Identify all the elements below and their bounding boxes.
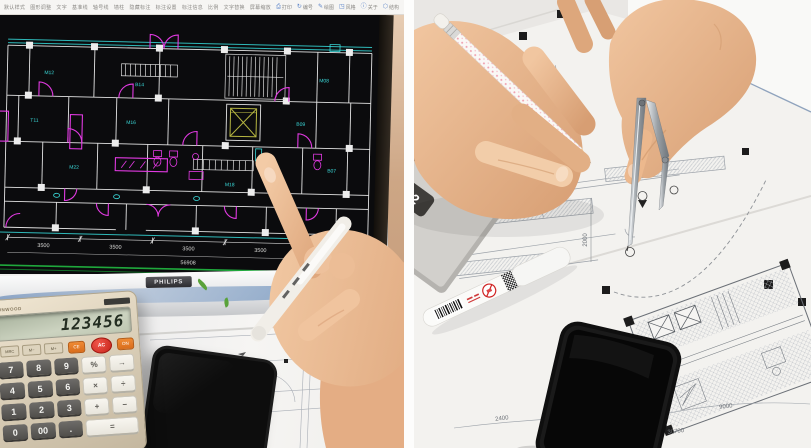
dim-label: 3500 [109,245,121,251]
num-key: 1 [1,403,27,422]
toolbar-tool: ⓘ关于 [361,4,378,11]
num-key: 9 [53,357,79,376]
num-key: 8 [26,359,52,378]
monitor-brand-logo: PHILIPS [146,276,192,288]
dim-label: 3500 [37,243,49,249]
print-icon: ⎙ [276,4,281,10]
toolbar-menu-item: 墙柱 [114,4,125,11]
num-key: 3 [56,399,82,418]
num-key: 6 [55,378,81,397]
toolbar-menu-item: 默认样式 [4,4,25,11]
num-key: 4 [0,382,25,401]
cad-dimension-strip: 3500 3500 3500 3500 3500 56908 [0,234,382,274]
compass-screw [639,100,645,106]
cad-floorplan: M12 B14 M08 T11 M16 B09 M22 M18 B07 [0,15,386,274]
room-label: B09 [296,122,305,128]
panel-divider [404,0,414,448]
room-label: B07 [327,168,336,174]
structure-icon: ⬡ [383,4,388,10]
column-markers [282,341,372,363]
clear-entry-key: CE [68,340,86,353]
num-key: 7 [0,361,24,380]
smartphone [139,344,279,448]
solar-panel [104,297,130,305]
on-key: ON [117,337,135,350]
compass-joint [662,157,668,163]
minus-key: − [112,395,138,415]
calculator-keypad: 7 8 9 % → 4 5 6 × ÷ 1 2 3 + − 0 00 . = [0,353,139,443]
room-label: M08 [319,78,329,84]
dim-total-label: 56908 [180,260,195,266]
percent-key: % [81,355,107,375]
toolbar-menu-item: 隐藏标注 [129,4,150,11]
renumber-icon: ↻ [297,4,302,10]
toolbar-menu-item: 屏幕缩放 [250,4,271,11]
toolbar-menu-item: 标注信息 [182,4,203,11]
num-key: 0 [2,424,28,443]
divide-key: ÷ [110,374,136,394]
num-key: 2 [29,401,55,420]
toolbar-menu-item: 标注设置 [156,4,177,11]
room-label: M18 [225,182,235,188]
room-label: T11 [30,118,39,124]
cad-curtain-wall [0,39,386,241]
toolbar-menu-item: 图形调整 [30,4,51,11]
about-icon: ⓘ [361,4,367,10]
photo-collage: 默认样式 图形调整 文字 基准线 轴号线 墙柱 隐藏标注 标注设置 标注信息 比… [0,0,811,448]
memory-key: MRC [0,345,20,357]
calculator-display: 123456 [60,310,125,333]
toolbar-tool: ↻编号 [297,4,313,11]
num-key: 00 [30,422,56,441]
cad-toolbar: 默认样式 图形调整 文字 基准线 轴号线 墙柱 隐藏标注 标注设置 标注信息 比… [0,0,404,15]
decimal-key: . [58,420,84,439]
toolbar-menu-item: 轴号线 [93,4,109,11]
phone-screen [152,352,236,422]
room-label: M12 [44,70,54,76]
blueprint-scene: 2000 2400 9000 30700 0 [414,0,811,448]
num-key: 5 [27,380,53,399]
toolbar-tool: ✎绘图 [318,4,334,11]
calculator-brand: SUNWOOD [0,306,22,313]
toolbar-menu-item: 文字替换 [224,4,245,11]
toolbar-tool: ⬡结构 [383,4,399,11]
cad-elevator [226,104,261,141]
multiply-key: × [83,376,109,396]
calculator: SUNWOOD 123456 MRC M− M+ CE AC ON 7 8 9 … [0,290,147,448]
toolbar-menu-item: 基准线 [72,4,88,11]
toolbar-tool: ⎙打印 [276,4,292,11]
cad-walls [4,45,372,235]
equals-key: = [86,416,140,438]
dim-label: 3500 [254,248,266,254]
toolbar-tool: ◳风格 [339,4,356,11]
all-clear-key: AC [90,336,112,353]
right-photo-blueprint-drafting: 2000 2400 9000 30700 0 [414,0,811,448]
room-label: M22 [69,165,79,171]
backspace-key: → [109,353,135,373]
memory-key: M− [22,344,42,356]
toolbar-menu-item: 比例 [208,4,219,11]
plus-key: + [84,397,110,417]
room-label: B14 [135,82,144,88]
monitor-screen: M12 B14 M08 T11 M16 B09 M22 M18 B07 [0,15,386,274]
dim-vertical: 2000 [583,233,589,247]
left-photo-cad-workstation: 默认样式 图形调整 文字 基准线 轴号线 墙柱 隐藏标注 标注设置 标注信息 比… [0,0,404,448]
room-label: M16 [126,120,136,126]
dim-label: 3500 [182,246,194,252]
cad-doors [0,31,324,234]
style-icon: ◳ [339,4,345,10]
draw-icon: ✎ [318,4,323,10]
dim-label: 3500 [327,249,339,255]
memory-key: M+ [44,342,64,354]
toolbar-menu-item: 文字 [56,4,67,11]
